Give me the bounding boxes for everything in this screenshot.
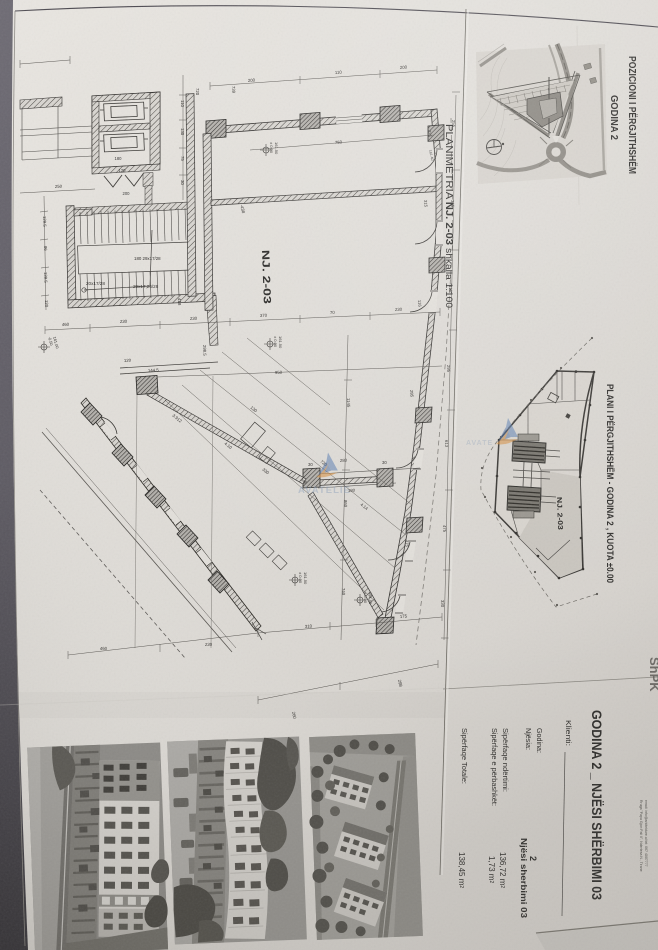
svg-text:295: 295 bbox=[446, 365, 451, 373]
svg-text:Sipërfaqe ndërtimi:: Sipërfaqe ndërtimi: bbox=[501, 728, 508, 792]
svg-text:136,72 m2: 136,72 m2 bbox=[498, 852, 507, 888]
svg-text:418: 418 bbox=[177, 298, 182, 306]
svg-text:230: 230 bbox=[190, 316, 198, 321]
svg-text:116: 116 bbox=[417, 300, 423, 308]
svg-text:± 0.00: ± 0.00 bbox=[298, 572, 303, 584]
svg-text:161.50: 161.50 bbox=[303, 572, 308, 585]
svg-text:613: 613 bbox=[444, 440, 449, 448]
svg-text:200: 200 bbox=[123, 191, 131, 196]
svg-text:1145: 1145 bbox=[346, 398, 351, 408]
svg-text:30: 30 bbox=[382, 460, 387, 465]
svg-text:129.5: 129.5 bbox=[42, 216, 47, 228]
svg-text:330: 330 bbox=[440, 600, 445, 608]
svg-text:29x17,26/28: 29x17,26/28 bbox=[133, 284, 159, 289]
svg-text:120: 120 bbox=[44, 300, 49, 308]
svg-text:860: 860 bbox=[343, 500, 348, 508]
svg-text:110: 110 bbox=[335, 69, 343, 75]
svg-text:1,73 m2: 1,73 m2 bbox=[487, 856, 496, 883]
svg-text:Rruga "Papa Gjon Pali II", Nde: Rruga "Papa Gjon Pali II", Ndertesa N., … bbox=[639, 800, 643, 872]
svg-text:Njësi sherbimi 03: Njësi sherbimi 03 bbox=[519, 838, 529, 918]
svg-text:± 0.00: ± 0.00 bbox=[273, 336, 278, 348]
svg-text:310: 310 bbox=[305, 623, 313, 629]
svg-text:AVATE: AVATE bbox=[466, 440, 493, 447]
svg-text:POZICIONI I PËRGJITHSHËM: POZICIONI I PËRGJITHSHËM bbox=[626, 56, 639, 174]
svg-text:161.50: 161.50 bbox=[274, 142, 279, 155]
svg-text:130: 130 bbox=[180, 128, 185, 136]
svg-text:Sipërfaqe Totale:: Sipërfaqe Totale: bbox=[460, 728, 467, 784]
svg-text:250: 250 bbox=[55, 184, 63, 189]
svg-text:Godina:: Godina: bbox=[535, 728, 542, 753]
svg-text:180: 180 bbox=[115, 156, 123, 161]
svg-text:GODINA 2 _ NJËSI SHËRBIMI 03: GODINA 2 _ NJËSI SHËRBIMI 03 bbox=[589, 710, 604, 900]
svg-text:139.5: 139.5 bbox=[43, 272, 48, 284]
svg-text:460: 460 bbox=[62, 322, 70, 327]
svg-text:NJ. 2-03: NJ. 2-03 bbox=[555, 497, 563, 530]
svg-text:200: 200 bbox=[248, 77, 256, 83]
svg-text:161.50: 161.50 bbox=[278, 336, 283, 349]
svg-text:ShPK: ShPK bbox=[647, 657, 658, 692]
svg-text:161.50: 161.50 bbox=[368, 592, 373, 605]
svg-text:GODINA 2: GODINA 2 bbox=[608, 95, 620, 140]
svg-text:475: 475 bbox=[442, 525, 447, 533]
svg-text:96: 96 bbox=[43, 246, 48, 252]
svg-text:230: 230 bbox=[395, 307, 403, 312]
svg-text:475: 475 bbox=[404, 540, 410, 548]
svg-text:Klienti:: Klienti: bbox=[564, 720, 573, 746]
svg-text:739: 739 bbox=[231, 86, 236, 94]
svg-text:PLANIMETRIA NJ. 2-03 shkalla: PLANIMETRIA NJ. 2-03 shkalla 1:100 bbox=[443, 124, 454, 308]
svg-text:120: 120 bbox=[119, 168, 127, 173]
svg-text:298.5: 298.5 bbox=[202, 345, 207, 357]
svg-text:70: 70 bbox=[330, 310, 336, 315]
svg-text:460: 460 bbox=[100, 646, 108, 651]
svg-text:740: 740 bbox=[341, 588, 346, 596]
svg-text:NJ. 2-03: NJ. 2-03 bbox=[259, 250, 273, 305]
svg-text:30: 30 bbox=[308, 462, 313, 467]
svg-text:± 0.00: ± 0.00 bbox=[363, 592, 368, 604]
svg-text:Sipërfaqe e përbashkët:: Sipërfaqe e përbashkët: bbox=[490, 728, 497, 806]
svg-text:144.5: 144.5 bbox=[148, 367, 160, 373]
svg-text:75: 75 bbox=[180, 156, 185, 161]
svg-text:email: info@arkitekture.al te: email: info@arkitekture.al tel: 067 4007… bbox=[644, 800, 648, 867]
svg-text:225: 225 bbox=[427, 130, 433, 138]
svg-text:110: 110 bbox=[180, 100, 185, 107]
svg-text:30: 30 bbox=[180, 180, 185, 185]
svg-text:720: 720 bbox=[195, 88, 200, 96]
svg-text:230: 230 bbox=[120, 319, 128, 324]
svg-text:280: 280 bbox=[340, 458, 348, 463]
svg-text:AVATELIE: AVATELIE bbox=[298, 485, 351, 496]
svg-text:950: 950 bbox=[275, 370, 283, 375]
svg-text:750: 750 bbox=[335, 139, 343, 145]
svg-text:200: 200 bbox=[400, 64, 408, 70]
svg-text:PLANI I PËRGJITHSHËM - GODINA: PLANI I PËRGJITHSHËM - GODINA 2 , KUOTA … bbox=[605, 384, 615, 583]
svg-text:295: 295 bbox=[409, 390, 415, 398]
svg-text:230: 230 bbox=[205, 642, 213, 647]
svg-text:120: 120 bbox=[124, 358, 132, 363]
svg-text:315: 315 bbox=[423, 200, 429, 208]
svg-text:20x17/28: 20x17/28 bbox=[86, 281, 105, 286]
svg-text:180 29x17/28: 180 29x17/28 bbox=[134, 256, 161, 261]
svg-text:138,45 m2: 138,45 m2 bbox=[457, 852, 466, 888]
svg-text:175: 175 bbox=[400, 613, 408, 619]
svg-text:370: 370 bbox=[260, 313, 268, 318]
svg-text:Njësia:: Njësia: bbox=[524, 728, 531, 750]
